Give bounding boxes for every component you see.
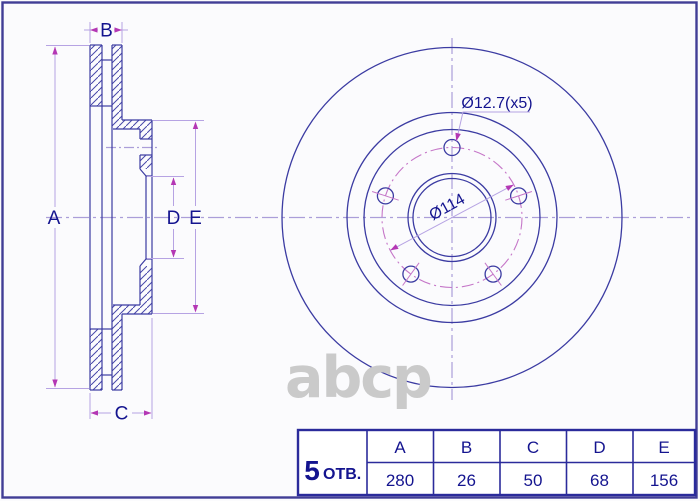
brake-disc-drawing: A B C D E Ø12.7(x5) Ø114 abcp 5 ОТВ. A <box>0 0 700 501</box>
dim-label-c: C <box>115 404 129 425</box>
page-border <box>3 3 697 498</box>
callout-labels: Ø12.7(x5) Ø114 <box>427 95 533 224</box>
dim-label-d: D <box>167 208 181 229</box>
dim-label-e: E <box>189 208 202 229</box>
pcd-callout: Ø114 <box>427 191 469 224</box>
table-value-d: 68 <box>590 471 609 490</box>
table-header-a: A <box>394 438 406 457</box>
table-header-b: B <box>461 438 472 457</box>
dim-label-b: B <box>100 21 113 42</box>
spec-table: 5 ОТВ. A B C D E 280 26 50 68 156 <box>298 430 695 495</box>
table-header-e: E <box>658 438 669 457</box>
table-header-c: C <box>527 438 539 457</box>
blueprint-page: A B C D E Ø12.7(x5) Ø114 abcp 5 ОТВ. A <box>0 0 700 501</box>
dim-label-a: A <box>48 208 61 229</box>
table-header-d: D <box>593 438 605 457</box>
holes-label: ОТВ. <box>323 466 361 483</box>
table-value-b: 26 <box>457 471 476 490</box>
dimension-labels: A B C D E <box>48 21 202 425</box>
table-value-c: 50 <box>524 471 543 490</box>
holes-count: 5 <box>304 455 320 486</box>
table-value-e: 156 <box>650 471 678 490</box>
bolt-holes-callout: Ø12.7(x5) <box>461 95 532 112</box>
watermark-logo: abcp <box>285 345 431 411</box>
table-value-a: 280 <box>386 471 414 490</box>
